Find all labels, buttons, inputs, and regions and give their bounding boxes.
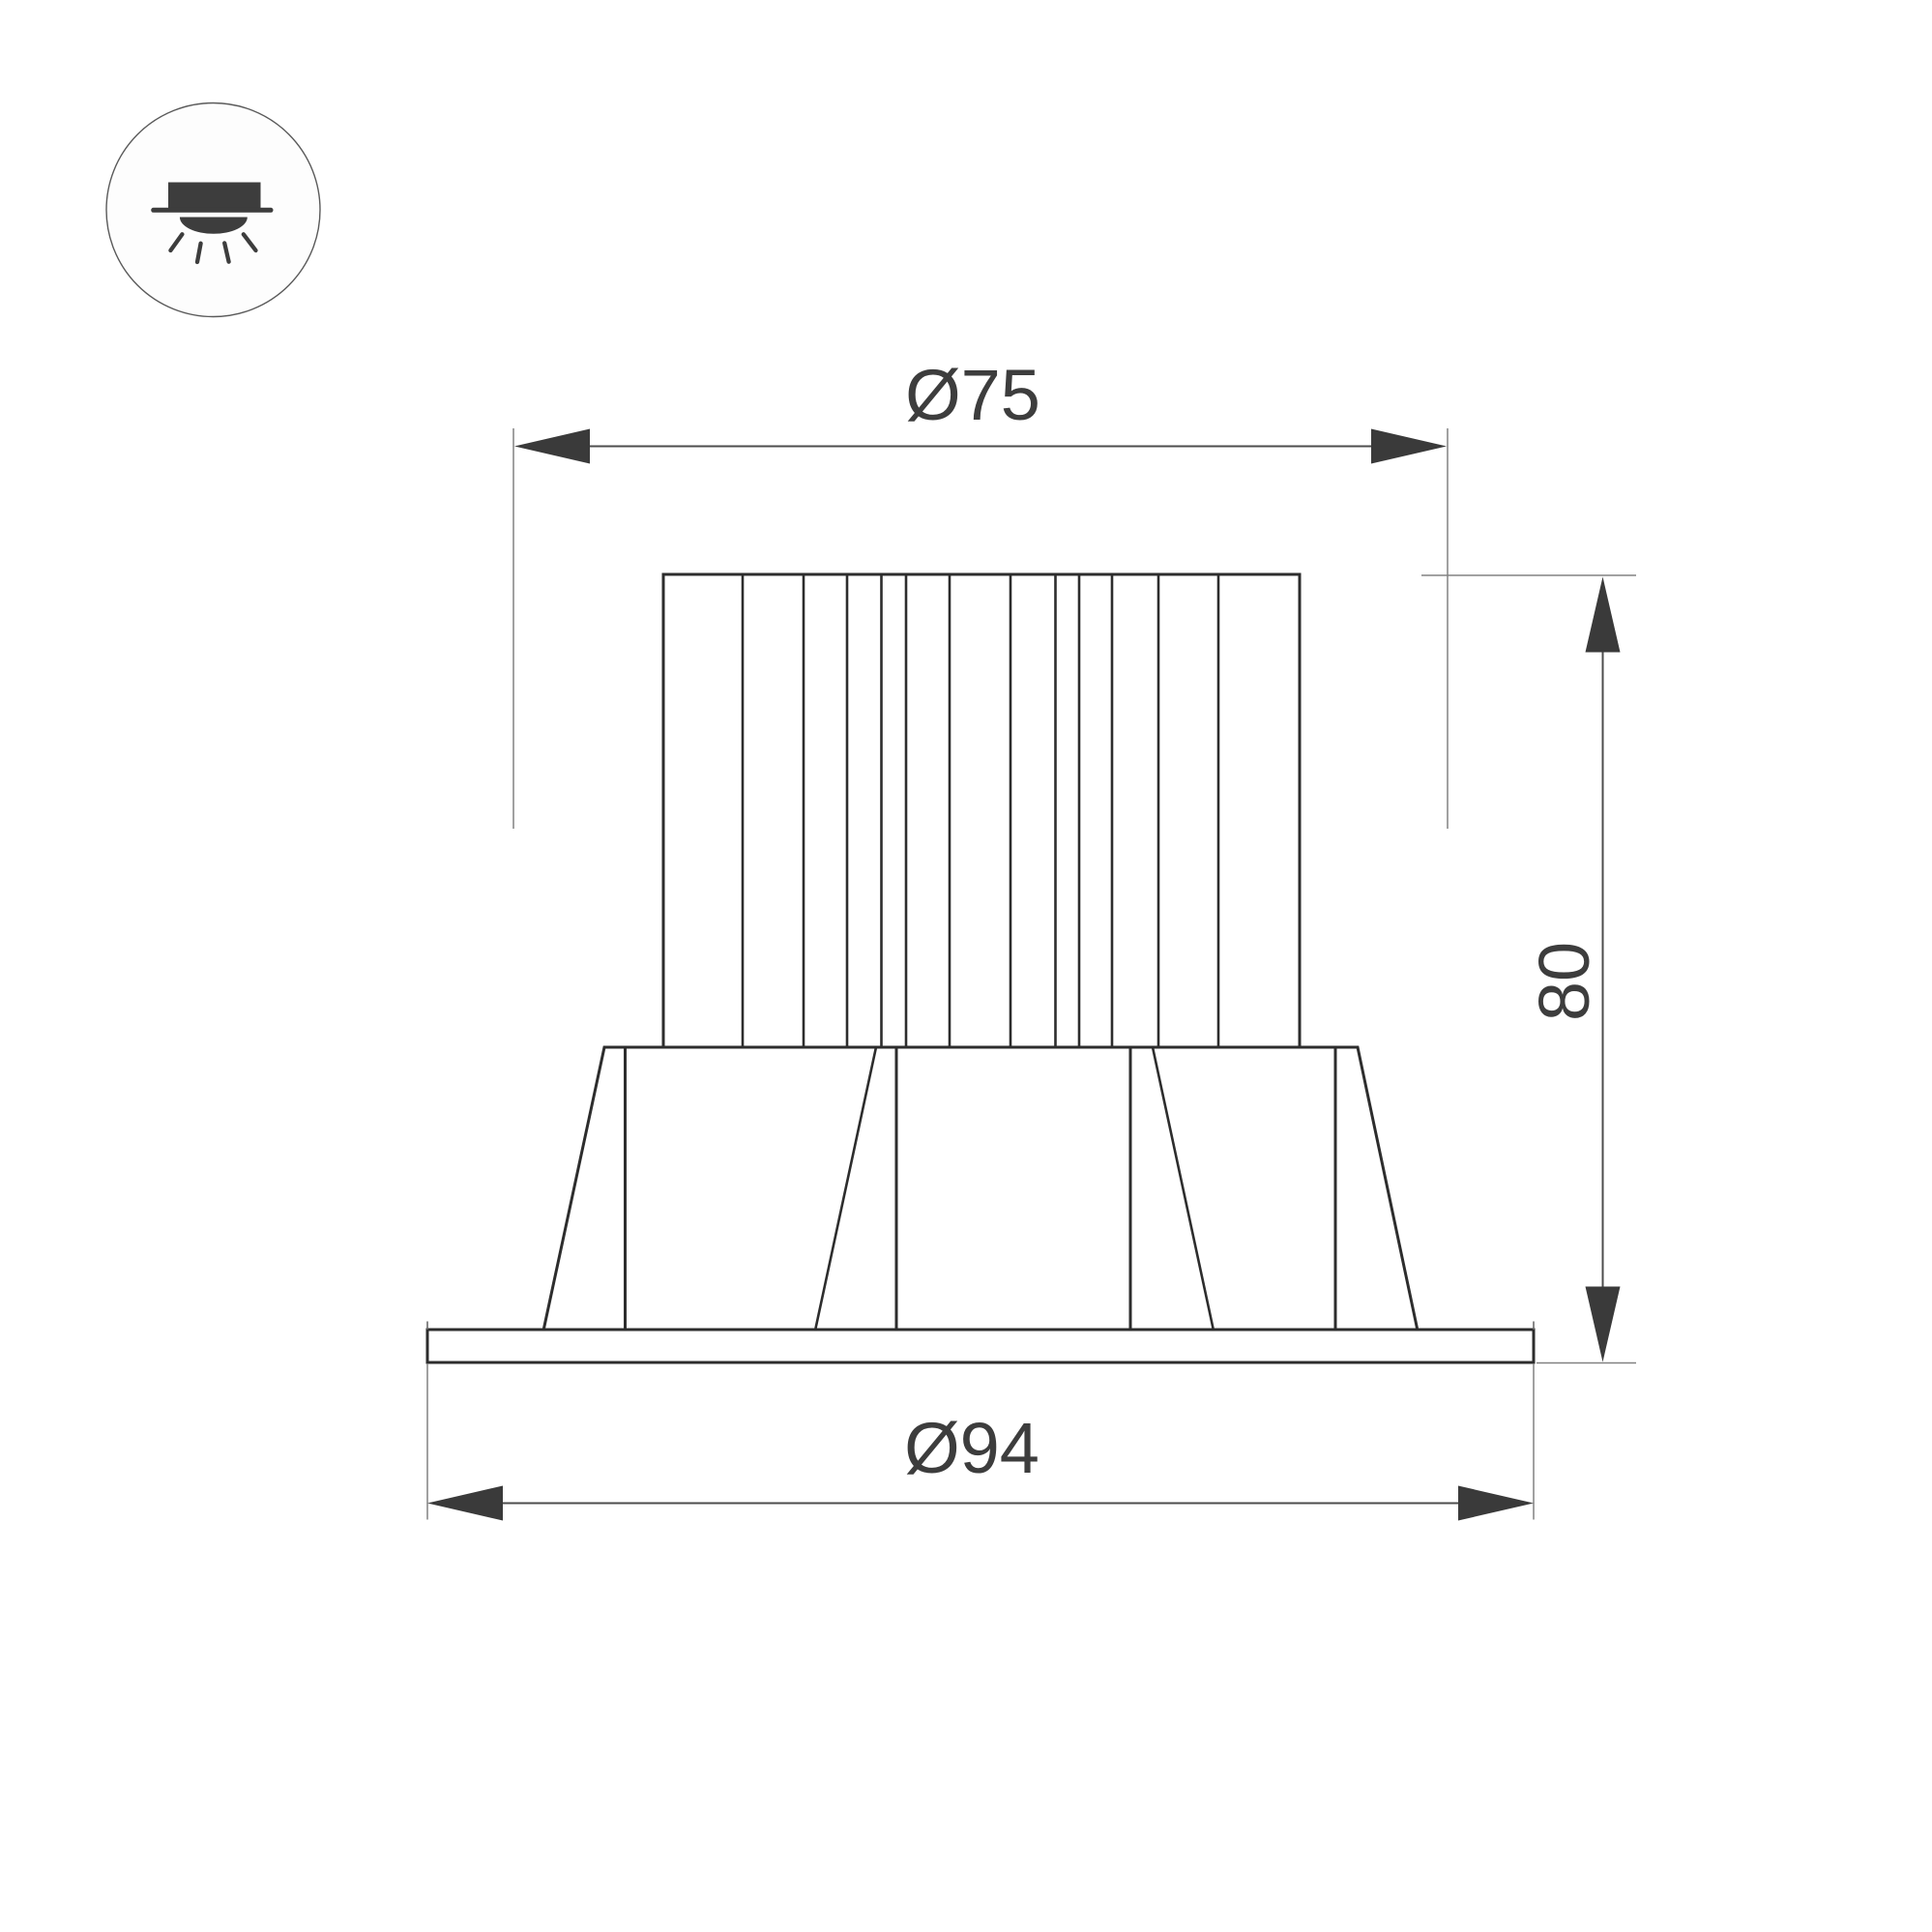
svg-text:80: 80 — [1524, 942, 1604, 1021]
svg-text:Ø75: Ø75 — [905, 355, 1040, 435]
svg-text:Ø94: Ø94 — [904, 1408, 1039, 1488]
